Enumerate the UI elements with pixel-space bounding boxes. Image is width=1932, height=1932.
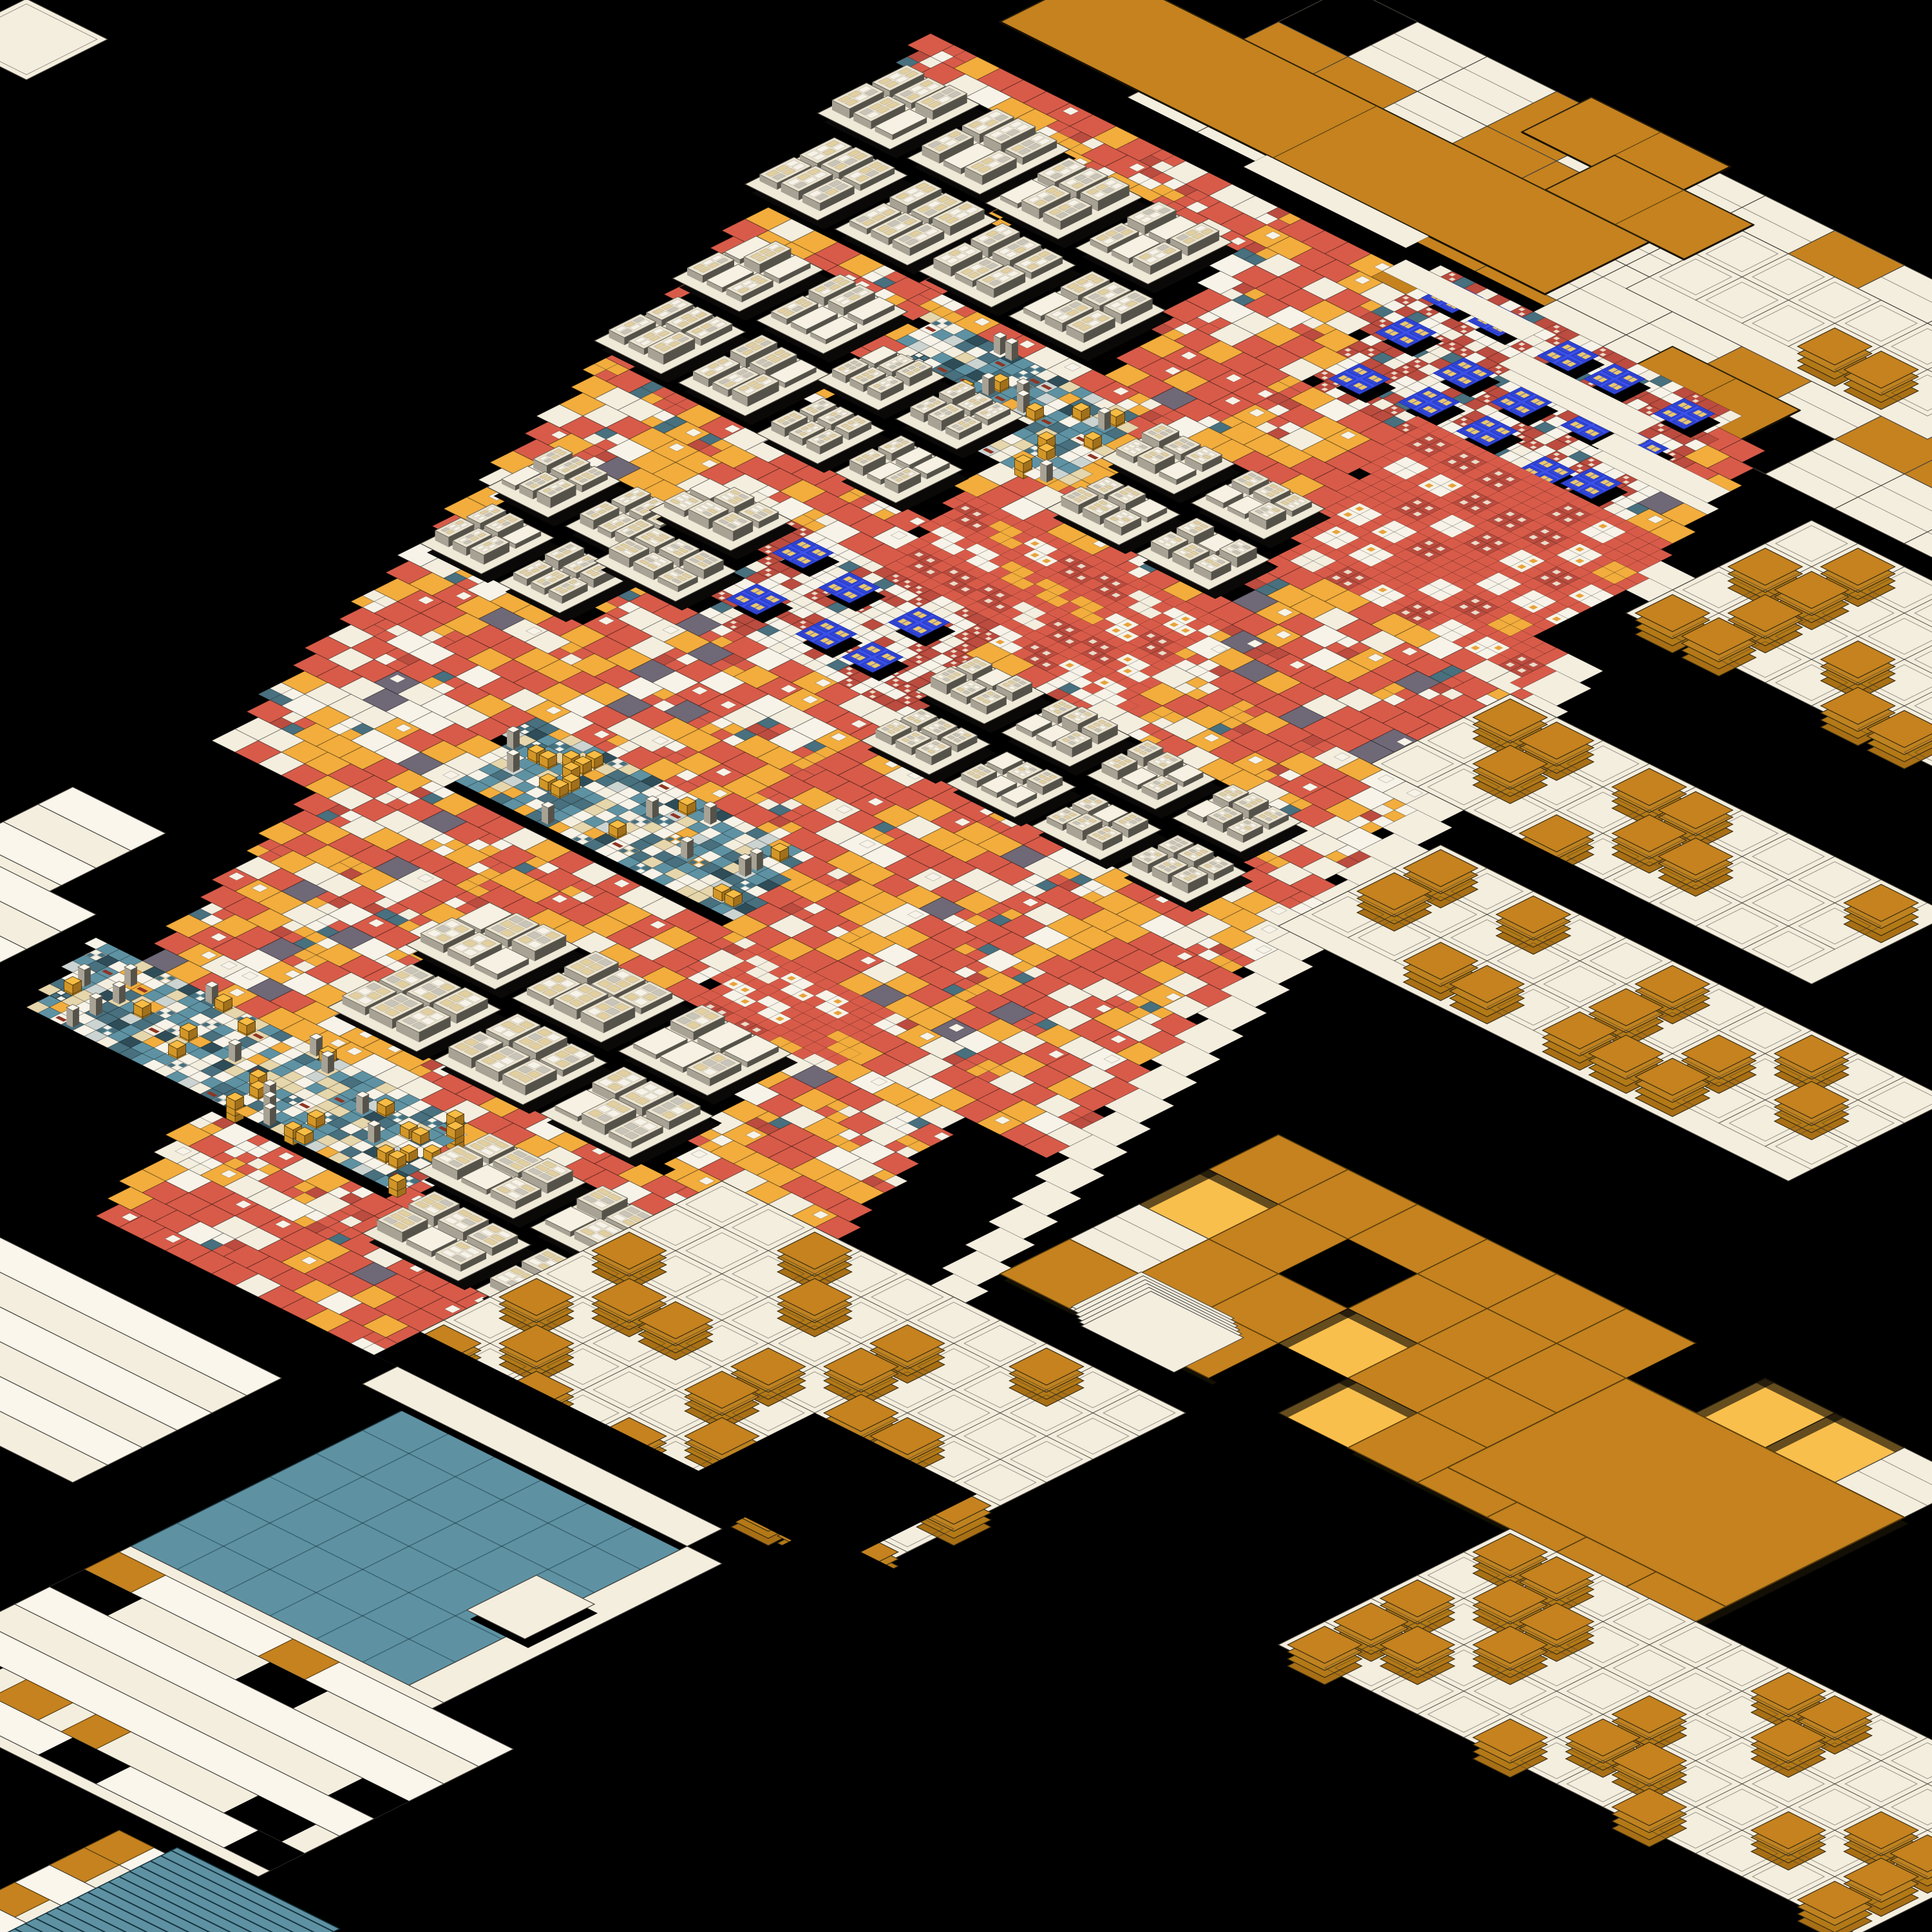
screenshot-root xyxy=(0,0,1932,1932)
isometric-scene xyxy=(0,0,1932,1932)
zone-corner-tile-nw xyxy=(0,0,108,80)
zone-plaza-bottom-r xyxy=(1278,1529,1932,1932)
zone-gap-bottom-b xyxy=(699,1529,1023,1691)
